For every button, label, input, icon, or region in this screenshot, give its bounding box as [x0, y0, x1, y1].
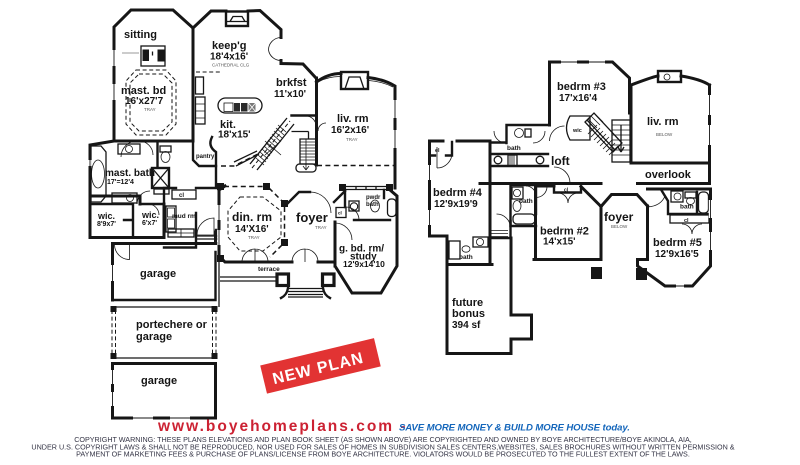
svg-text:bedrm #5: bedrm #5 [653, 237, 702, 249]
svg-text:pantry: pantry [196, 154, 215, 160]
svg-text:brkfst: brkfst [276, 77, 307, 89]
svg-text:12'9x16'5: 12'9x16'5 [655, 249, 699, 260]
svg-text:cl: cl [179, 193, 184, 199]
svg-text:bath: bath [519, 198, 533, 205]
svg-text:18'4x16': 18'4x16' [210, 52, 248, 63]
svg-text:12'9x14'10: 12'9x14'10 [343, 259, 385, 269]
svg-text:terrace: terrace [258, 266, 280, 273]
svg-text:wic.: wic. [141, 210, 159, 220]
svg-text:loft: loft [551, 154, 570, 168]
svg-text:bedrm #3: bedrm #3 [557, 81, 606, 93]
svg-text:keep'g: keep'g [212, 40, 246, 52]
svg-text:mast. bath: mast. bath [105, 168, 155, 179]
svg-text:pwdr: pwdr [366, 195, 381, 201]
svg-text:garage: garage [141, 375, 177, 387]
svg-text:wic.: wic. [97, 211, 115, 221]
svg-text:portechere or: portechere or [136, 319, 208, 331]
svg-text:8'9x7': 8'9x7' [97, 221, 116, 228]
svg-text:BELOW: BELOW [611, 224, 628, 229]
svg-text:TRAY: TRAY [346, 137, 358, 142]
svg-text:garage: garage [140, 268, 176, 280]
svg-text:11'x10': 11'x10' [274, 89, 306, 100]
svg-text:TRAY: TRAY [315, 225, 327, 230]
svg-text:17'x16'4: 17'x16'4 [559, 93, 598, 104]
svg-text:bonus: bonus [452, 308, 485, 320]
svg-text:bath: bath [459, 254, 473, 261]
svg-text:foyer: foyer [296, 210, 328, 225]
svg-text:bath: bath [507, 145, 521, 152]
svg-text:bath: bath [680, 204, 694, 211]
svg-text:liv. rm: liv. rm [337, 113, 369, 125]
svg-text:cl: cl [338, 211, 342, 216]
svg-text:cl: cl [564, 188, 569, 194]
svg-text:sitting: sitting [124, 29, 157, 41]
svg-text:SAVE MORE MONEY & BUILD MORE H: SAVE MORE MONEY & BUILD MORE HOUSE today… [399, 423, 630, 434]
svg-text:CATHEDRAL CLG: CATHEDRAL CLG [212, 63, 250, 68]
svg-text:17'=12'4: 17'=12'4 [107, 179, 134, 186]
svg-text:TRAY: TRAY [144, 107, 156, 112]
svg-text:14'x15': 14'x15' [543, 237, 576, 248]
svg-text:12'9x19'9: 12'9x19'9 [434, 199, 478, 210]
svg-text:liv. rm: liv. rm [647, 116, 679, 128]
svg-text:18'x15': 18'x15' [218, 130, 251, 141]
svg-text:PAYMENT OF MARKETING FEES & PU: PAYMENT OF MARKETING FEES & PURCHASE OF … [76, 450, 690, 459]
svg-text:14'X16': 14'X16' [235, 224, 269, 235]
svg-text:bath: bath [366, 202, 379, 208]
svg-text:394 sf: 394 sf [452, 320, 481, 331]
svg-text:garage: garage [136, 331, 172, 343]
svg-text:wic: wic [572, 128, 582, 134]
svg-text:din. rm: din. rm [232, 210, 272, 224]
svg-text:cl: cl [684, 218, 689, 224]
svg-text:mud rm: mud rm [172, 213, 196, 220]
svg-text:TRAY: TRAY [248, 235, 260, 240]
svg-text:el: el [435, 148, 440, 154]
svg-text:16'2x16': 16'2x16' [331, 125, 369, 136]
svg-text:16'x27'7: 16'x27'7 [125, 96, 164, 107]
svg-text:6'x7': 6'x7' [142, 220, 157, 227]
svg-text:BELOW: BELOW [656, 132, 673, 137]
svg-text:bedrm #4: bedrm #4 [433, 187, 483, 199]
svg-text:foyer: foyer [604, 210, 634, 224]
svg-text:www.boyehomeplans.com -: www.boyehomeplans.com - [157, 418, 408, 435]
svg-text:overlook: overlook [645, 169, 692, 181]
